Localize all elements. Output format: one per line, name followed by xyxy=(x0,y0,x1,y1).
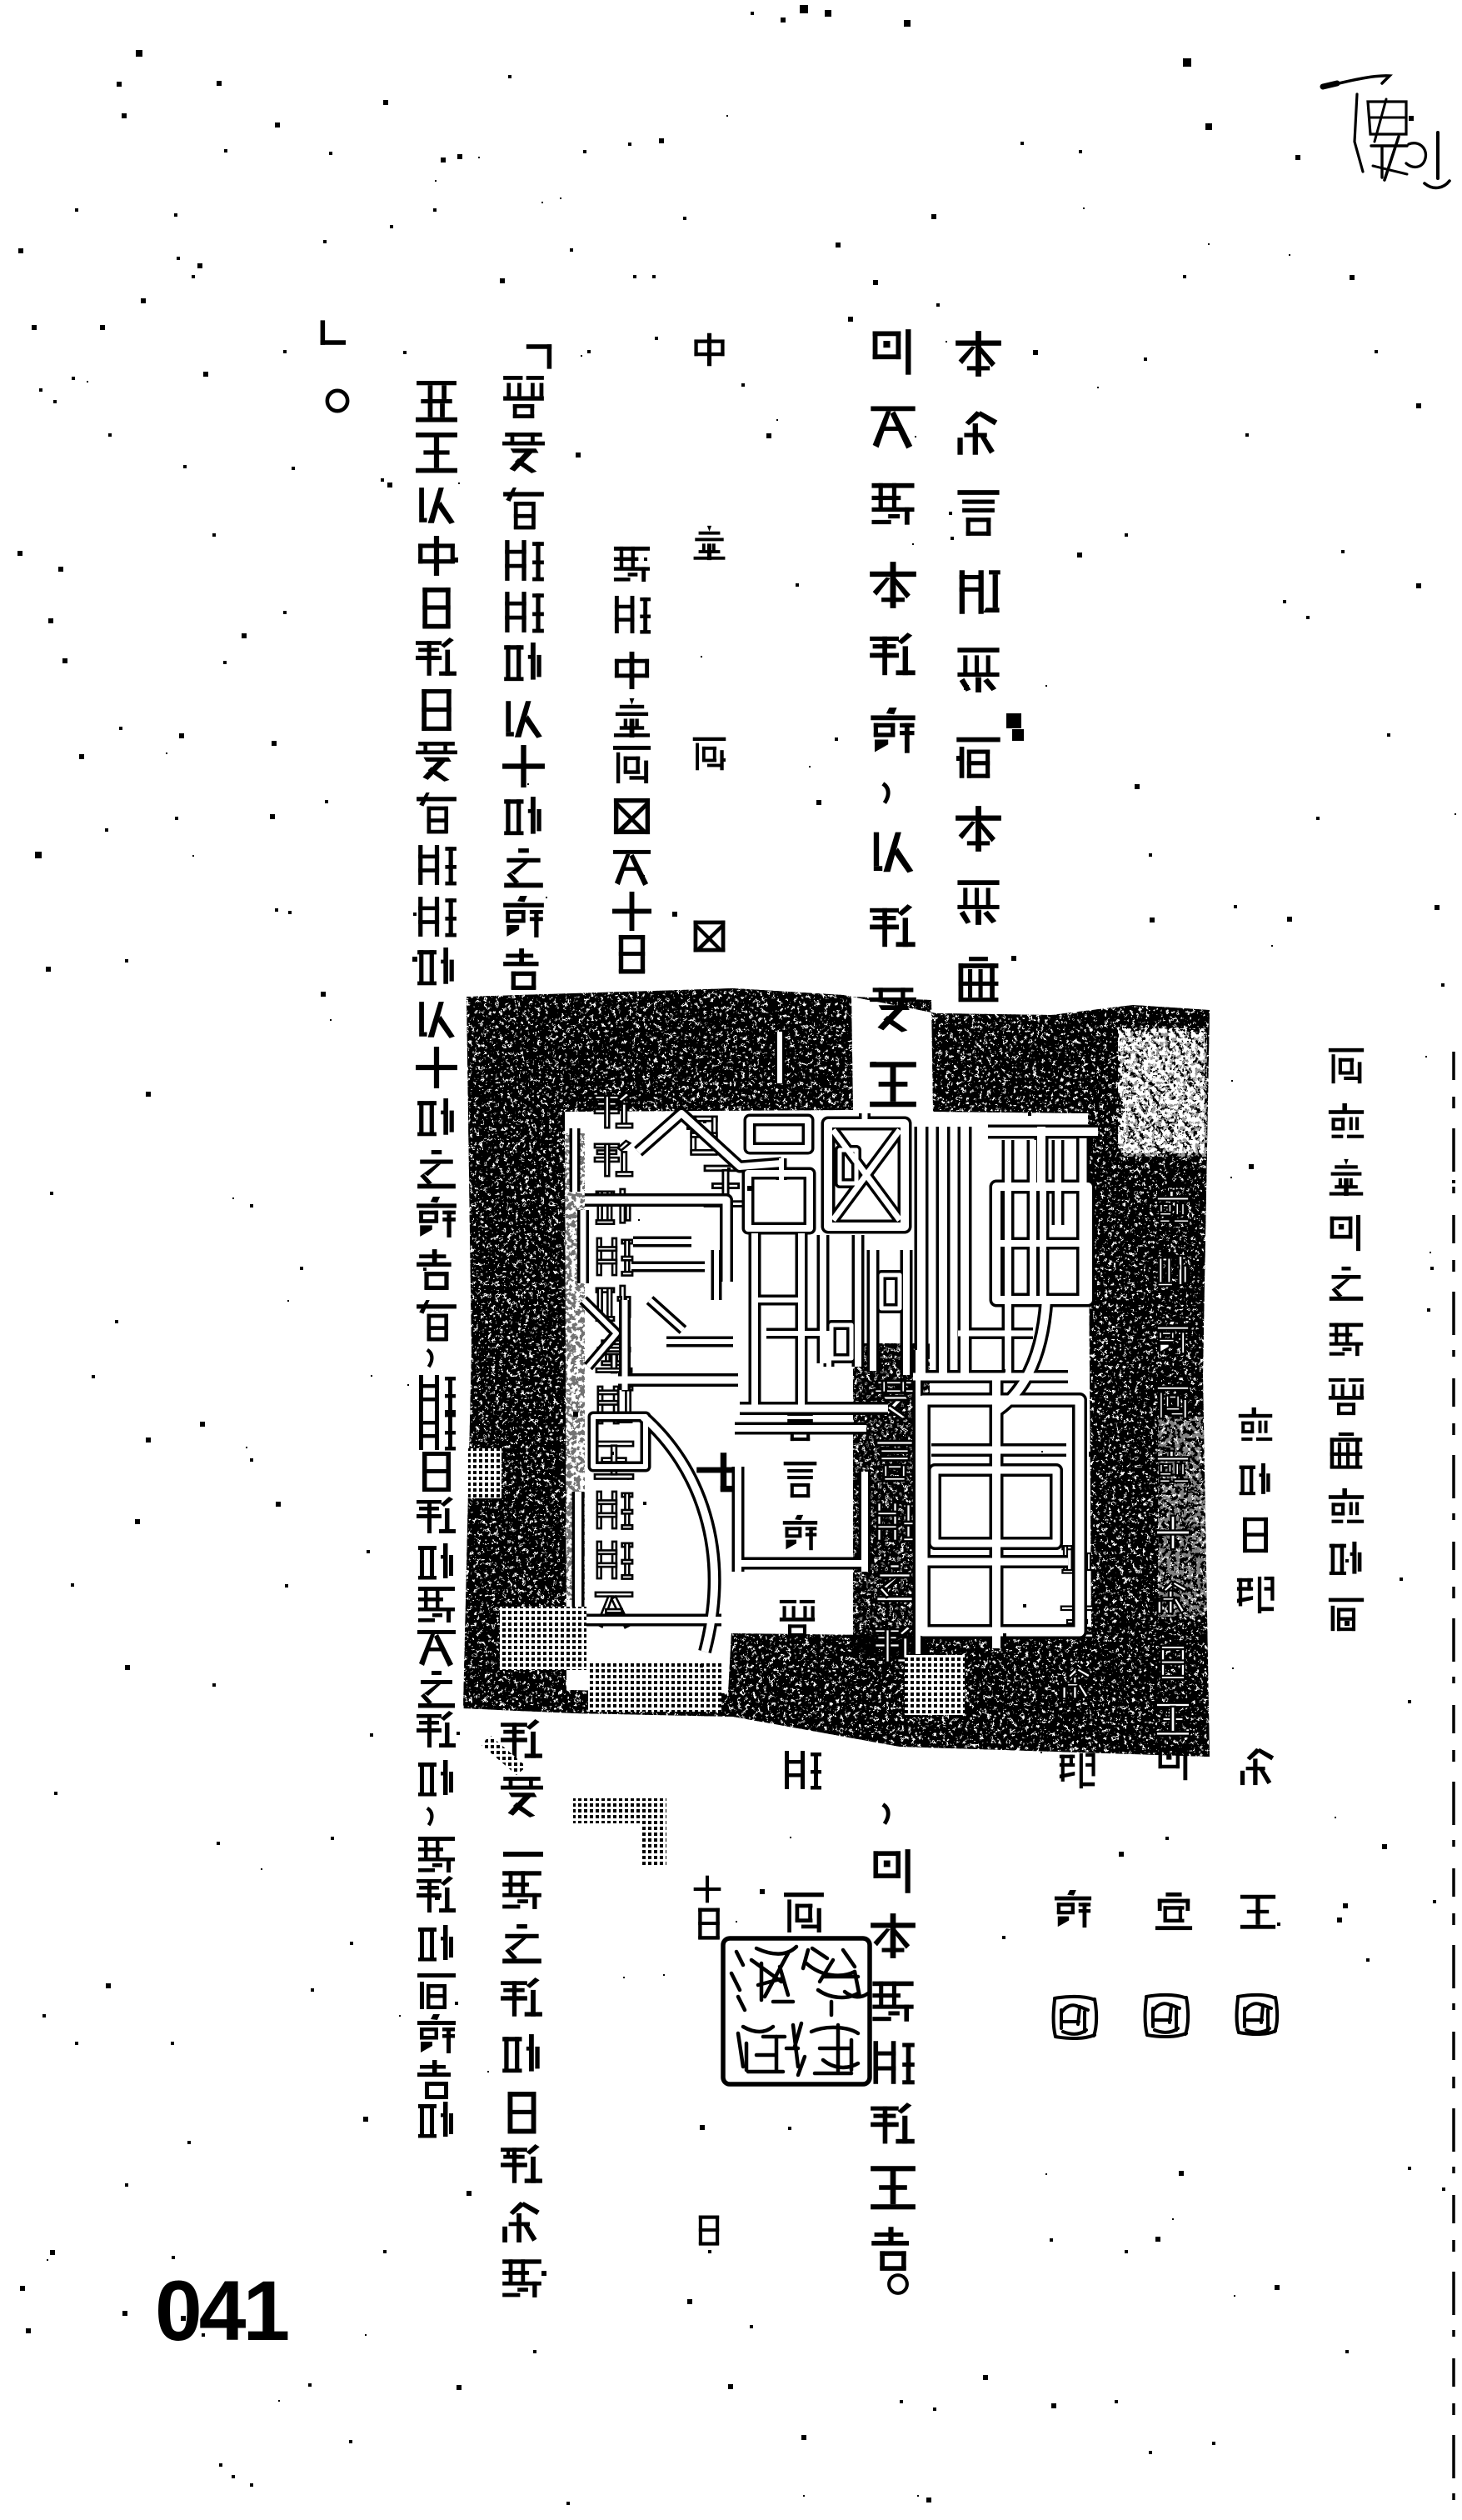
svg-text:041: 041 xyxy=(155,2263,287,2358)
